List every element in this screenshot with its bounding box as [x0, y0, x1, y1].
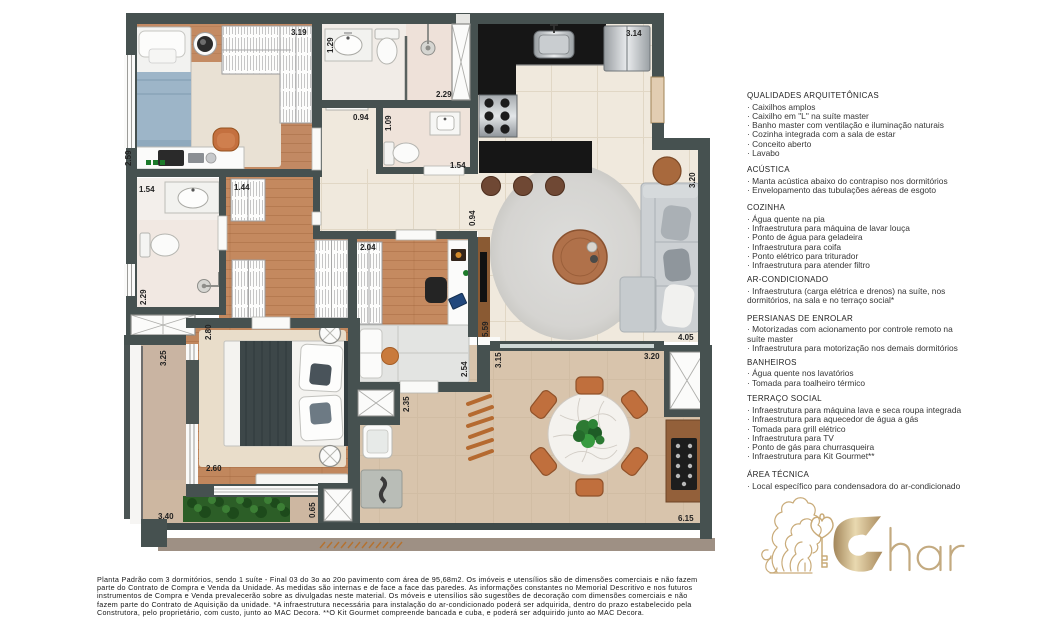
svg-text:2.59: 2.59 — [124, 150, 133, 166]
svg-text:2.35: 2.35 — [402, 396, 411, 412]
svg-text:3.19: 3.19 — [291, 28, 307, 37]
svg-text:3.25: 3.25 — [159, 350, 168, 366]
svg-text:1.54: 1.54 — [139, 185, 155, 194]
svg-text:3.40: 3.40 — [158, 512, 174, 521]
svg-text:4.05: 4.05 — [678, 333, 694, 342]
svg-text:5.59: 5.59 — [481, 321, 490, 337]
svg-text:6.15: 6.15 — [678, 514, 694, 523]
svg-text:3.15: 3.15 — [494, 352, 503, 368]
svg-text:1.44: 1.44 — [234, 183, 250, 192]
svg-text:2.04: 2.04 — [360, 243, 376, 252]
svg-text:1.54: 1.54 — [450, 161, 466, 170]
svg-text:2.60: 2.60 — [206, 464, 222, 473]
svg-text:3.20: 3.20 — [688, 172, 697, 188]
svg-text:2.29: 2.29 — [436, 90, 452, 99]
svg-text:3.14: 3.14 — [626, 29, 642, 38]
svg-text:0.94: 0.94 — [468, 210, 477, 226]
svg-text:0.65: 0.65 — [308, 502, 317, 518]
svg-text:3.20: 3.20 — [644, 352, 660, 361]
svg-text:1.29: 1.29 — [326, 37, 335, 53]
svg-text:2.54: 2.54 — [460, 361, 469, 377]
svg-text:0.94: 0.94 — [353, 113, 369, 122]
svg-text:1.09: 1.09 — [384, 115, 393, 131]
svg-text:2.29: 2.29 — [139, 289, 148, 305]
svg-text:2.80: 2.80 — [204, 324, 213, 340]
